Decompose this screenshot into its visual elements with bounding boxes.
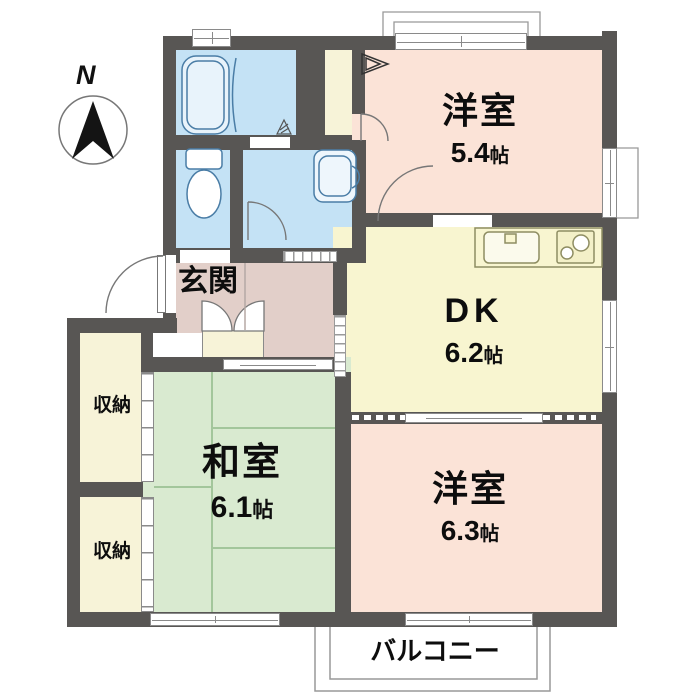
dk-name: DK [400,294,548,330]
closet-door-arc [361,114,388,141]
storage-lower-name: 収納 [83,542,141,562]
fixtures-layer [0,0,700,700]
room-label-genkan: 玄関 [172,266,244,298]
room-label-storage-upper: 収納 [83,396,141,416]
room-label-balcony: バルコニー [345,638,525,665]
bedroom2-unit: 帖 [480,523,500,545]
genkan-name: 玄関 [172,266,244,298]
floor-plan: N 洋室 5.4帖 DK 6.2帖 洋室 6.3帖 和室 6.1帖 玄関 収納 … [0,0,700,700]
washitsu-name: 和室 [164,444,320,484]
drain-icon [277,120,291,134]
balcony-name: バルコニー [345,638,525,665]
bedroom1-size: 5.4 [451,137,490,168]
room-label-bedroom1: 洋室 5.4帖 [400,92,560,167]
toilet-icon [186,149,222,218]
room-label-dk: DK 6.2帖 [400,294,548,367]
door-arcs [106,114,433,313]
closet-shelf-icon [362,54,388,74]
kitchen-sink-icon [484,232,539,263]
top-window-frame [383,12,540,36]
side-window-frame [617,148,638,218]
bedroom2-name: 洋室 [390,470,550,508]
room-label-washitsu: 和室 6.1帖 [164,444,320,523]
bathtub-icon [182,56,236,134]
stove-icon [557,231,594,263]
compass-north-label: N [76,60,96,91]
bedroom2-size: 6.3 [441,515,480,546]
room-label-bedroom2: 洋室 6.3帖 [390,470,550,545]
storage-upper-name: 収納 [83,396,141,416]
bedroom1-name: 洋室 [400,92,560,130]
entrance-door-arc [106,256,163,313]
room-label-storage-lower: 収納 [83,542,141,562]
bedroom1-door-arc [378,166,433,221]
bedroom1-unit: 帖 [490,145,510,167]
dk-size: 6.2 [445,337,484,368]
shoe-cabinet-doors [202,301,264,331]
washbasin-icon [314,150,359,202]
kitchen-counter [475,228,602,267]
washitsu-size: 6.1 [211,491,253,524]
dk-unit: 帖 [484,345,504,367]
compass-icon [59,96,127,164]
washitsu-unit: 帖 [252,499,273,522]
washroom-door-arc [248,202,286,240]
